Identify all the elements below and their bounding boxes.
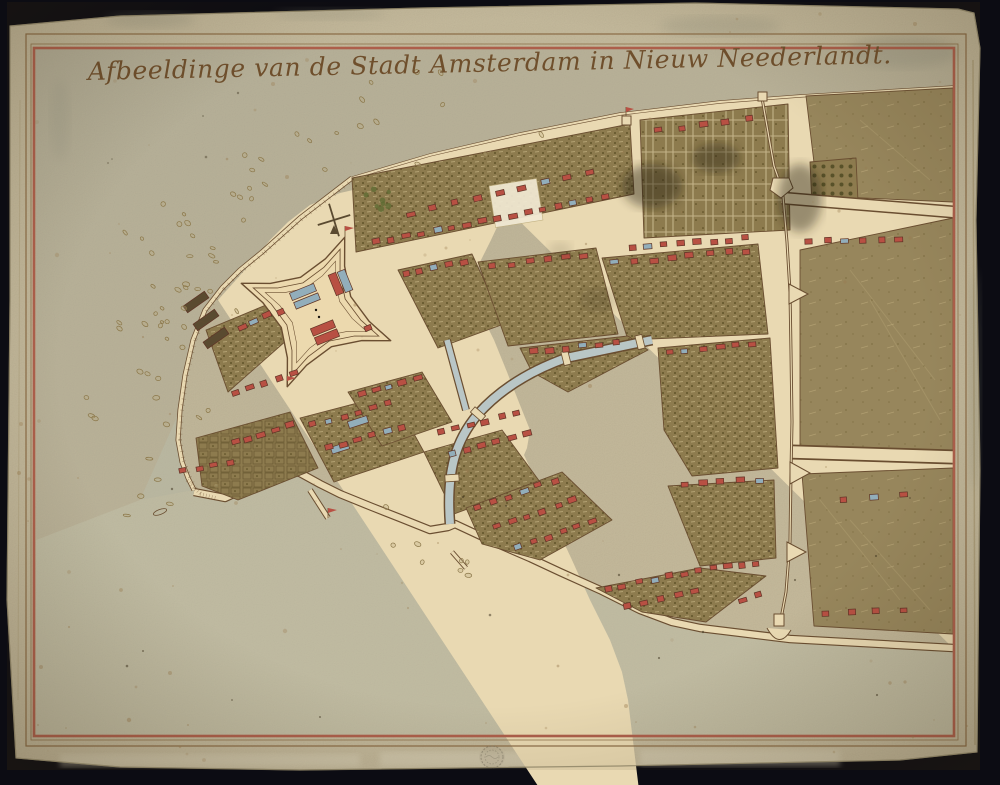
scanned-map-photo: Afbeeldinge van de Stadt Amsterdam in Ni… <box>0 0 1000 785</box>
map-canvas: Afbeeldinge van de Stadt Amsterdam in Ni… <box>0 0 1000 785</box>
vignette <box>7 2 980 770</box>
